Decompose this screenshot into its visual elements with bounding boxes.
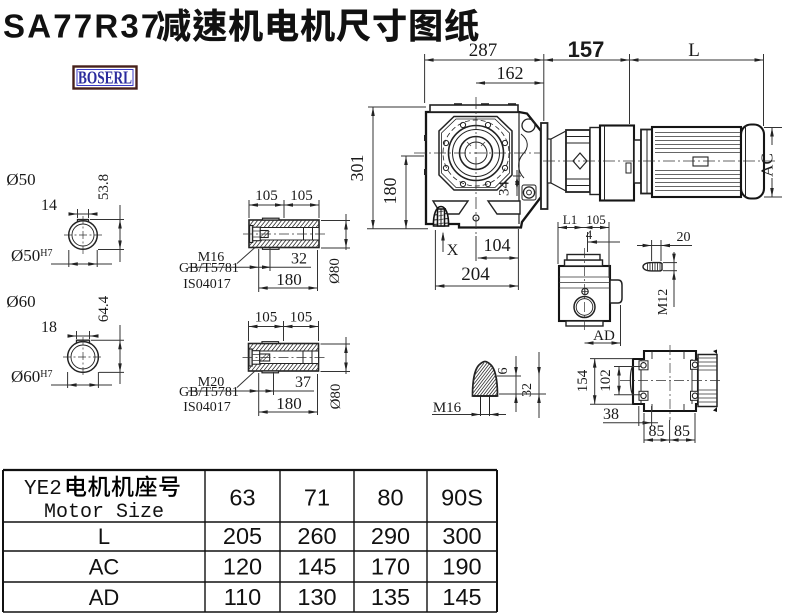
svg-text:157: 157 — [568, 37, 605, 62]
svg-text:204: 204 — [461, 264, 490, 285]
svg-text:IS04017: IS04017 — [183, 400, 230, 415]
svg-text:135: 135 — [371, 584, 410, 610]
svg-text:37: 37 — [295, 374, 311, 391]
svg-text:300: 300 — [442, 523, 481, 549]
svg-text:85: 85 — [674, 423, 690, 440]
svg-text:105: 105 — [255, 310, 278, 326]
svg-text:80: 80 — [377, 485, 403, 511]
svg-text:301: 301 — [347, 155, 367, 182]
svg-text:L1: L1 — [563, 212, 577, 227]
svg-text:105: 105 — [255, 188, 278, 204]
svg-text:105: 105 — [290, 310, 313, 326]
svg-text:M16: M16 — [433, 400, 462, 416]
svg-text:20: 20 — [677, 230, 691, 245]
svg-text:130: 130 — [297, 584, 336, 610]
svg-text:260: 260 — [297, 523, 336, 549]
svg-text:102: 102 — [598, 369, 614, 392]
svg-text:AD: AD — [593, 328, 615, 344]
svg-text:63: 63 — [229, 485, 255, 511]
svg-text:6: 6 — [496, 368, 511, 375]
svg-text:YE2: YE2 — [24, 478, 62, 501]
svg-text:AD: AD — [89, 585, 120, 610]
svg-text:18: 18 — [41, 319, 57, 336]
svg-text:4: 4 — [586, 228, 593, 242]
svg-text:145: 145 — [442, 584, 481, 610]
svg-text:L: L — [688, 40, 700, 61]
svg-text:71: 71 — [304, 485, 330, 511]
svg-text:190: 190 — [442, 554, 481, 580]
svg-text:290: 290 — [371, 523, 410, 549]
svg-text:32: 32 — [520, 383, 535, 397]
svg-text:AC: AC — [89, 555, 120, 580]
svg-text:Motor Size: Motor Size — [44, 501, 164, 524]
svg-text:105: 105 — [290, 188, 313, 204]
svg-text:GB/T5781: GB/T5781 — [179, 385, 239, 400]
svg-text:L: L — [98, 524, 110, 549]
svg-text:32: 32 — [291, 251, 307, 268]
svg-text:M12: M12 — [656, 289, 671, 315]
svg-text:180: 180 — [380, 178, 400, 205]
svg-text:34: 34 — [497, 181, 513, 197]
svg-text:90S: 90S — [441, 485, 483, 511]
svg-text:Ø80: Ø80 — [328, 384, 344, 410]
svg-text:GB/T5781: GB/T5781 — [179, 261, 239, 276]
svg-text:Ø50: Ø50 — [6, 170, 35, 189]
svg-text:Ø80: Ø80 — [327, 258, 343, 284]
svg-text:287: 287 — [469, 40, 498, 61]
svg-text:180: 180 — [276, 394, 302, 413]
svg-text:Ø60: Ø60 — [6, 292, 35, 311]
svg-text:SA77R37: SA77R37 — [3, 8, 162, 45]
svg-text:IS04017: IS04017 — [183, 277, 230, 292]
svg-text:205: 205 — [223, 523, 262, 549]
svg-text:AC: AC — [758, 153, 777, 177]
svg-text:104: 104 — [484, 235, 511, 255]
svg-text:53.8: 53.8 — [96, 174, 112, 200]
svg-text:14: 14 — [41, 197, 57, 214]
svg-text:105: 105 — [586, 212, 606, 227]
svg-text:64.4: 64.4 — [96, 295, 112, 322]
svg-text:85: 85 — [649, 423, 665, 440]
svg-text:38: 38 — [603, 406, 619, 423]
svg-text:X: X — [447, 242, 459, 259]
svg-text:110: 110 — [224, 584, 261, 610]
svg-text:162: 162 — [497, 63, 524, 83]
svg-text:180: 180 — [276, 270, 302, 289]
svg-text:145: 145 — [297, 554, 336, 580]
svg-text:154: 154 — [575, 369, 591, 392]
svg-text:BOSERL: BOSERL — [78, 68, 132, 88]
svg-text:170: 170 — [371, 554, 410, 580]
svg-text:120: 120 — [223, 554, 262, 580]
